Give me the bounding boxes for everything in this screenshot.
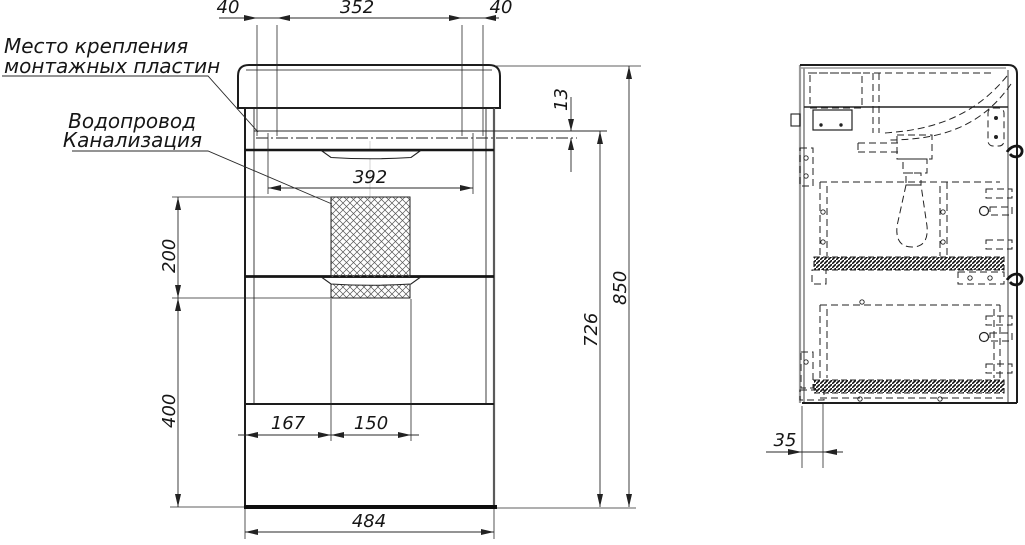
bracket-screw-2 bbox=[839, 123, 842, 126]
rail-back-block-1 bbox=[812, 270, 826, 284]
back-clip-lower bbox=[801, 352, 813, 388]
dim-back-offset-text: 35 bbox=[774, 430, 797, 451]
plumbing-label-line2: Канализация bbox=[63, 128, 202, 152]
dim-inner-width: 392 bbox=[268, 167, 473, 191]
bowl-curve-1 bbox=[884, 76, 1007, 133]
hidden-internals bbox=[791, 73, 1022, 401]
dim-cabinet-height: 726 bbox=[581, 131, 603, 507]
slide-rail-1 bbox=[814, 257, 1004, 270]
wall-clip bbox=[791, 114, 800, 126]
back-bracket-hidden bbox=[810, 73, 862, 108]
rail-end-block-1 bbox=[958, 272, 1004, 284]
bracket-screw-1 bbox=[819, 123, 822, 126]
bowl-curve-2 bbox=[888, 84, 1011, 140]
back-bracket bbox=[813, 110, 852, 130]
dim-top: 40 352 40 bbox=[217, 0, 513, 21]
drawer2-box-sides bbox=[820, 305, 1000, 378]
dim-hatch-height-text: 200 bbox=[159, 239, 180, 273]
dim-plate-offset-left: 40 bbox=[217, 0, 240, 18]
drawer1-handle-recess bbox=[322, 151, 420, 159]
vanity-drawing-svg: 40 352 40 392 13 200 400 bbox=[0, 0, 1025, 545]
slide-rail-2 bbox=[814, 380, 1004, 393]
dim-cabinet-width: 484 bbox=[245, 511, 494, 535]
dim-hatch-width-text: 150 bbox=[354, 413, 388, 434]
drain-mid bbox=[903, 159, 927, 173]
cam-latch-1 bbox=[990, 207, 1012, 215]
fastener-marks bbox=[804, 156, 992, 401]
dim-back-offset: 35 bbox=[766, 404, 843, 468]
side-view: 35 bbox=[766, 65, 1022, 468]
dim-cabinet-width-text: 484 bbox=[352, 511, 386, 532]
dim-plate-offset-right: 40 bbox=[490, 0, 513, 18]
dim-plate-spacing: 352 bbox=[340, 0, 374, 18]
dim-hatch-left-text: 167 bbox=[271, 413, 306, 434]
dim-total-height-text: 850 bbox=[610, 271, 631, 305]
adjust-cam-1 bbox=[980, 207, 989, 216]
dim-cabinet-height-text: 726 bbox=[581, 313, 602, 347]
front-bracket-screw-2 bbox=[994, 135, 998, 139]
label-plumbing: Водопровод Канализация bbox=[63, 109, 332, 204]
plumbing-leader-line bbox=[72, 151, 332, 204]
side-outline bbox=[800, 65, 1017, 403]
dim-plate-height: 13 bbox=[551, 88, 574, 172]
back-clip-upper bbox=[800, 148, 813, 186]
adjust-cam-2 bbox=[980, 333, 989, 342]
siphon-bottle bbox=[897, 185, 927, 247]
front-view: 40 352 40 392 13 200 400 bbox=[2, 0, 641, 539]
mounting-label-line2: монтажных пластин bbox=[4, 54, 220, 78]
waste-pipe bbox=[858, 143, 900, 152]
technical-drawing: 40 352 40 392 13 200 400 bbox=[0, 0, 1025, 545]
front-bracket bbox=[988, 108, 1004, 146]
drawer1-box-sides bbox=[820, 182, 947, 256]
drain-neck bbox=[906, 173, 921, 185]
drawer2-handle-recess bbox=[322, 278, 420, 286]
overflow-channel bbox=[873, 73, 879, 133]
handle-profile-lower bbox=[1007, 274, 1022, 285]
front-bracket-screw-1 bbox=[994, 116, 998, 120]
dim-inner-width-text: 392 bbox=[353, 167, 387, 188]
dim-plate-height-text: 13 bbox=[551, 88, 572, 111]
cam-latch-2 bbox=[990, 333, 1012, 341]
handle-profile-upper bbox=[1007, 146, 1022, 157]
dim-bottom-offsets: 167 150 bbox=[238, 413, 419, 438]
dim-hatch-to-floor-text: 400 bbox=[159, 394, 180, 428]
dim-left-vertical: 200 400 bbox=[159, 197, 181, 507]
dim-total-height: 850 bbox=[610, 66, 632, 507]
